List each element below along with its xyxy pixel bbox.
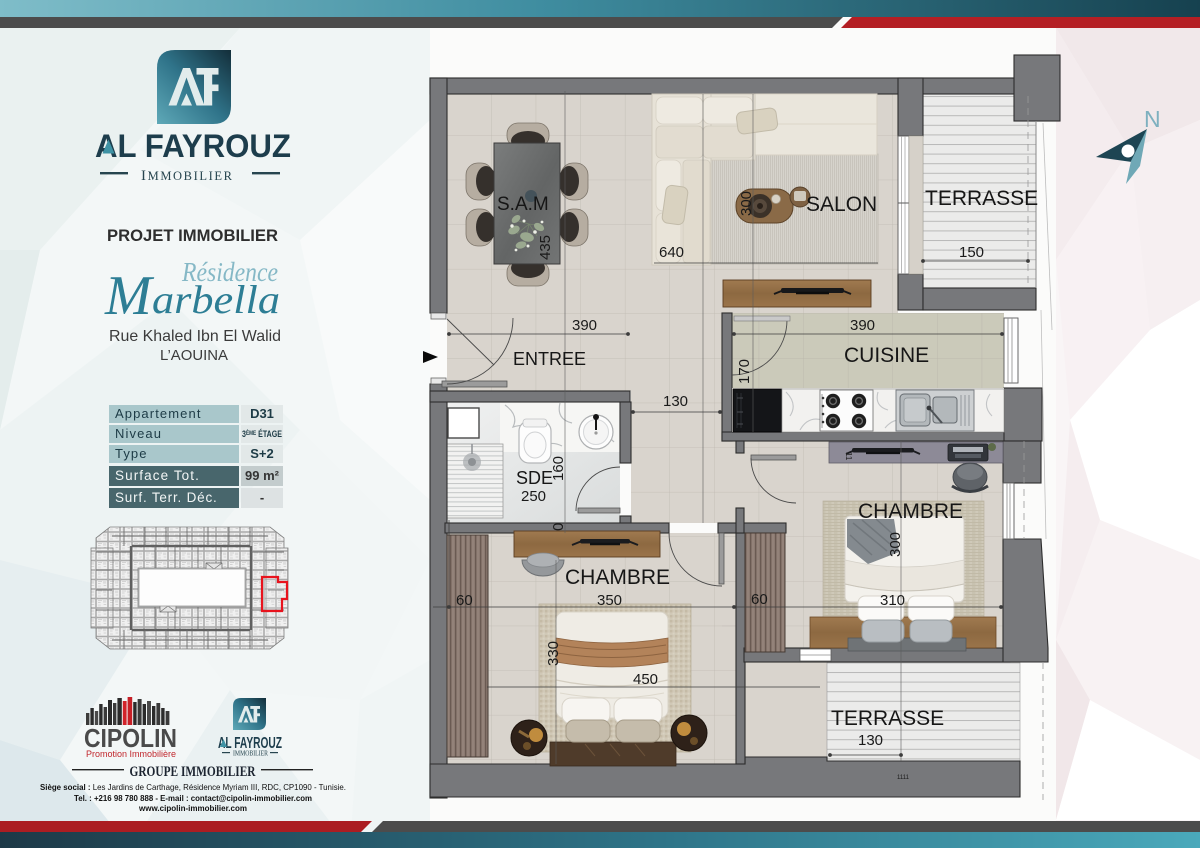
svg-text:435: 435: [537, 235, 554, 260]
svg-text:Siège social : Les Jardins de: Siège social : Les Jardins de Carthage, …: [40, 782, 346, 792]
svg-text:Tel. : +216 98 780 888 - E-ma: Tel. : +216 98 780 888 - E-mail : contac…: [74, 793, 312, 803]
svg-text:arbella: arbella: [152, 277, 280, 322]
svg-text:SDE: SDE: [516, 468, 553, 488]
svg-text:GROUPE IMMOBILIER: GROUPE IMMOBILIER: [130, 764, 256, 780]
svg-text:250: 250: [521, 488, 546, 505]
svg-text:D31: D31: [250, 406, 274, 421]
svg-text:300: 300: [887, 532, 904, 557]
svg-text:-: -: [260, 490, 264, 505]
svg-text:Promotion Immobilière: Promotion Immobilière: [86, 749, 176, 760]
svg-text:Surface Tot.: Surface Tot.: [115, 468, 200, 483]
svg-text:130: 130: [663, 393, 688, 410]
svg-text:S+2: S+2: [250, 446, 274, 461]
svg-text:11: 11: [844, 452, 853, 461]
svg-text:Niveau: Niveau: [115, 426, 162, 441]
svg-text:TERRASSE: TERRASSE: [925, 187, 1038, 210]
svg-text:310: 310: [880, 592, 905, 609]
svg-text:390: 390: [572, 317, 597, 334]
svg-text:S.A.M: S.A.M: [497, 194, 549, 215]
svg-text:CHAMBRE: CHAMBRE: [858, 500, 963, 523]
svg-text:www.cipolin-immobilier.com: www.cipolin-immobilier.com: [138, 803, 247, 813]
svg-text:L’AOUINA: L’AOUINA: [160, 348, 228, 364]
svg-text:640: 640: [659, 244, 684, 261]
svg-text:PROJET IMMOBILIER: PROJET IMMOBILIER: [107, 226, 278, 245]
svg-text:390: 390: [850, 317, 875, 334]
svg-text:AL FAYROUZ: AL FAYROUZ: [95, 128, 291, 164]
svg-text:99 m²: 99 m²: [245, 468, 280, 483]
svg-text:TERRASSE: TERRASSE: [831, 707, 944, 730]
svg-text:1111: 1111: [897, 775, 910, 781]
svg-text:Rue Khaled Ibn El Walid: Rue Khaled Ibn El Walid: [109, 328, 281, 345]
svg-text:ENTREE: ENTREE: [513, 349, 586, 369]
svg-text:350: 350: [597, 592, 622, 609]
svg-text:M: M: [104, 265, 155, 327]
svg-text:150: 150: [959, 244, 984, 261]
svg-text:0: 0: [550, 523, 567, 531]
svg-text:CUISINE: CUISINE: [844, 344, 929, 367]
svg-text:160: 160: [550, 456, 567, 481]
svg-text:IMMOBILIER: IMMOBILIER: [233, 749, 268, 758]
svg-text:130: 130: [858, 732, 883, 749]
svg-text:SALON: SALON: [806, 193, 877, 216]
svg-text:300: 300: [738, 191, 755, 216]
svg-text:Appartement: Appartement: [115, 406, 202, 421]
svg-text:Surf. Terr. Déc.: Surf. Terr. Déc.: [115, 490, 218, 505]
svg-text:330: 330: [545, 641, 562, 666]
svg-text:Type: Type: [115, 446, 148, 461]
svg-text:IMMOBILIER: IMMOBILIER: [141, 168, 234, 184]
svg-text:60: 60: [751, 591, 768, 608]
svg-text:170: 170: [736, 359, 753, 384]
svg-text:CHAMBRE: CHAMBRE: [565, 566, 670, 589]
svg-text:60: 60: [456, 592, 473, 609]
svg-text:450: 450: [633, 671, 658, 688]
